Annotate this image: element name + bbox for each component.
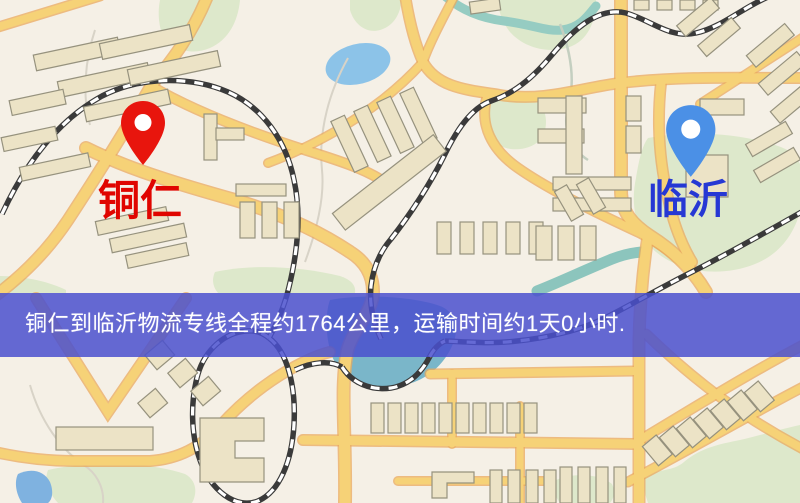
map-canvas: 铜仁 临沂 <box>0 0 800 503</box>
logistics-route-map: 铜仁 临沂 铜仁到临沂物流专线全程约1764公里，运输时间约1天0小时. <box>0 0 800 503</box>
route-info-banner: 铜仁到临沂物流专线全程约1764公里，运输时间约1天0小时. <box>0 293 800 357</box>
origin-city-label: 铜仁 <box>98 177 182 224</box>
route-info-text: 铜仁到临沂物流专线全程约1764公里，运输时间约1天0小时. <box>25 306 626 338</box>
destination-city-label: 临沂 <box>648 178 728 222</box>
